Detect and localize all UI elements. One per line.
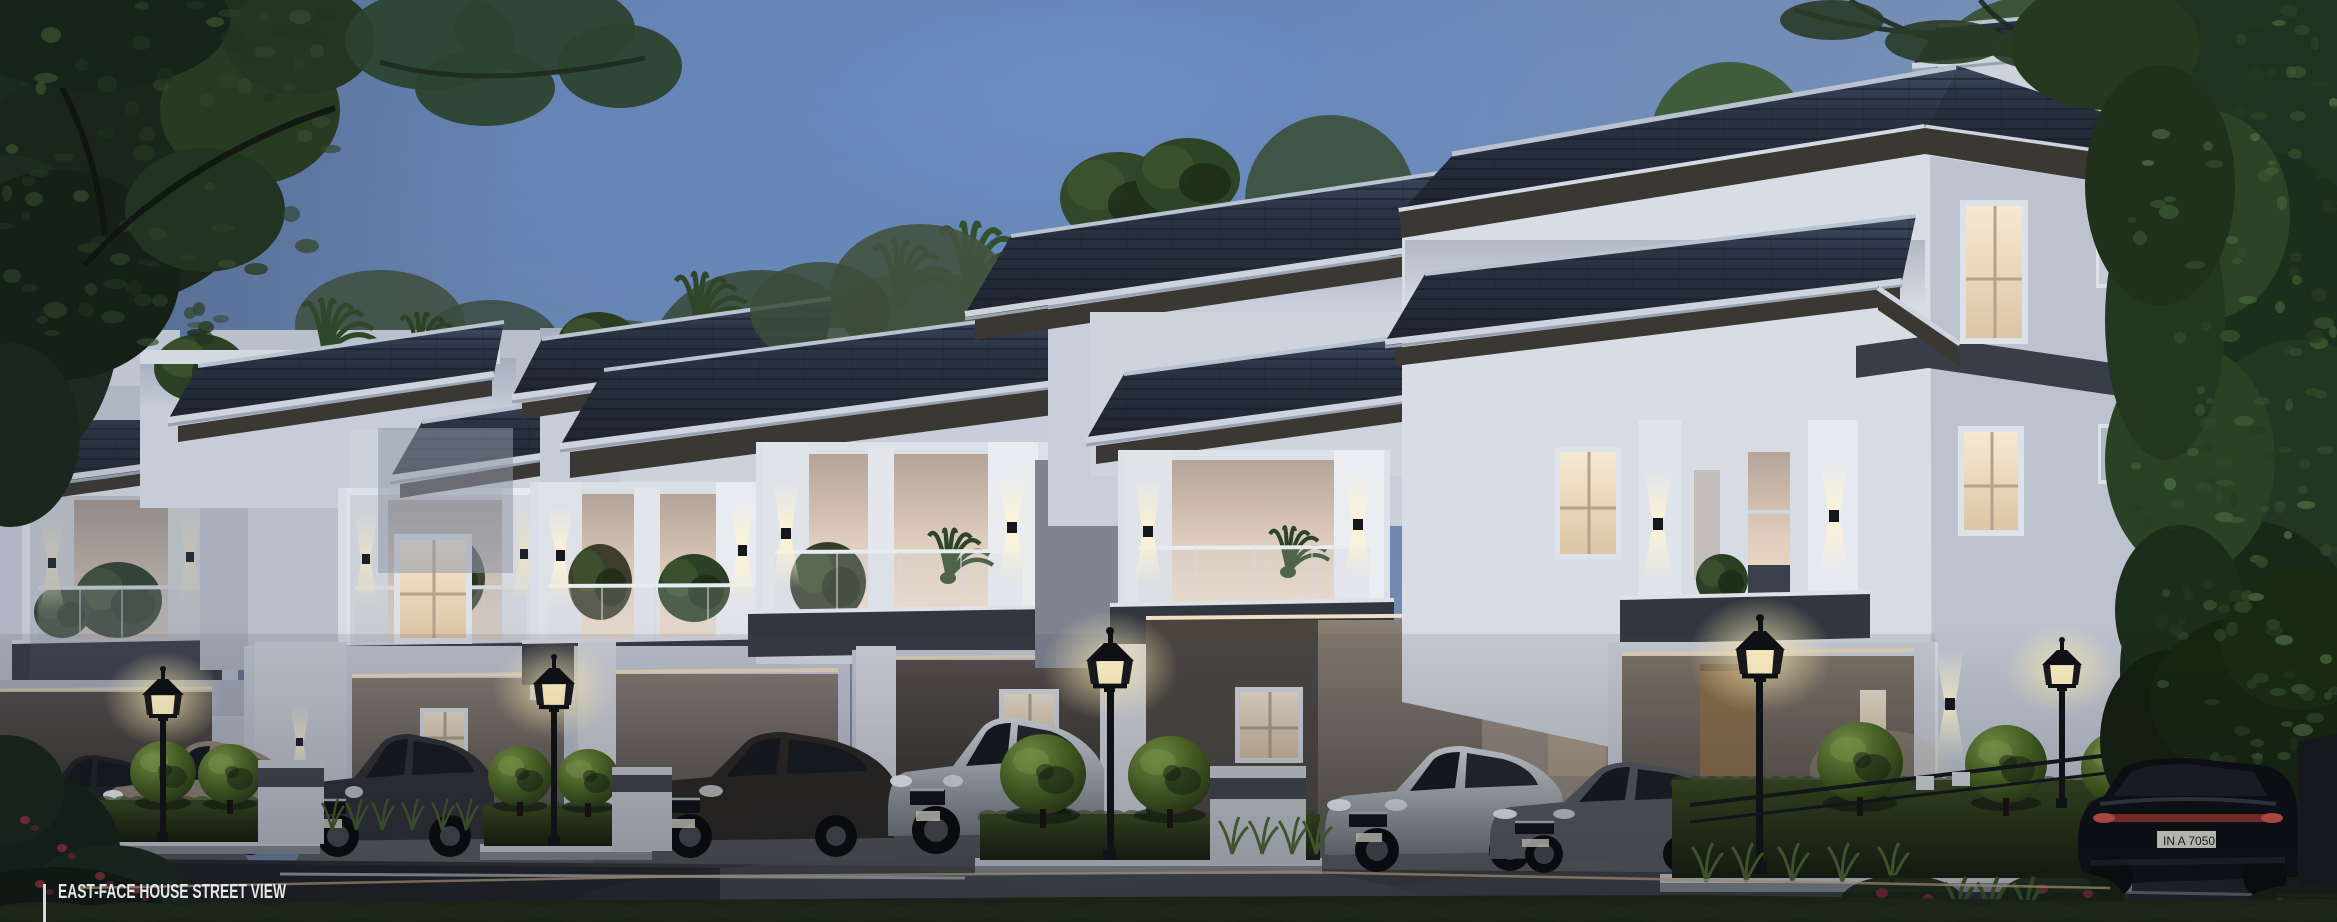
svg-text:EAST-FACE HOUSE STREET VIEW: EAST-FACE HOUSE STREET VIEW (58, 881, 286, 903)
